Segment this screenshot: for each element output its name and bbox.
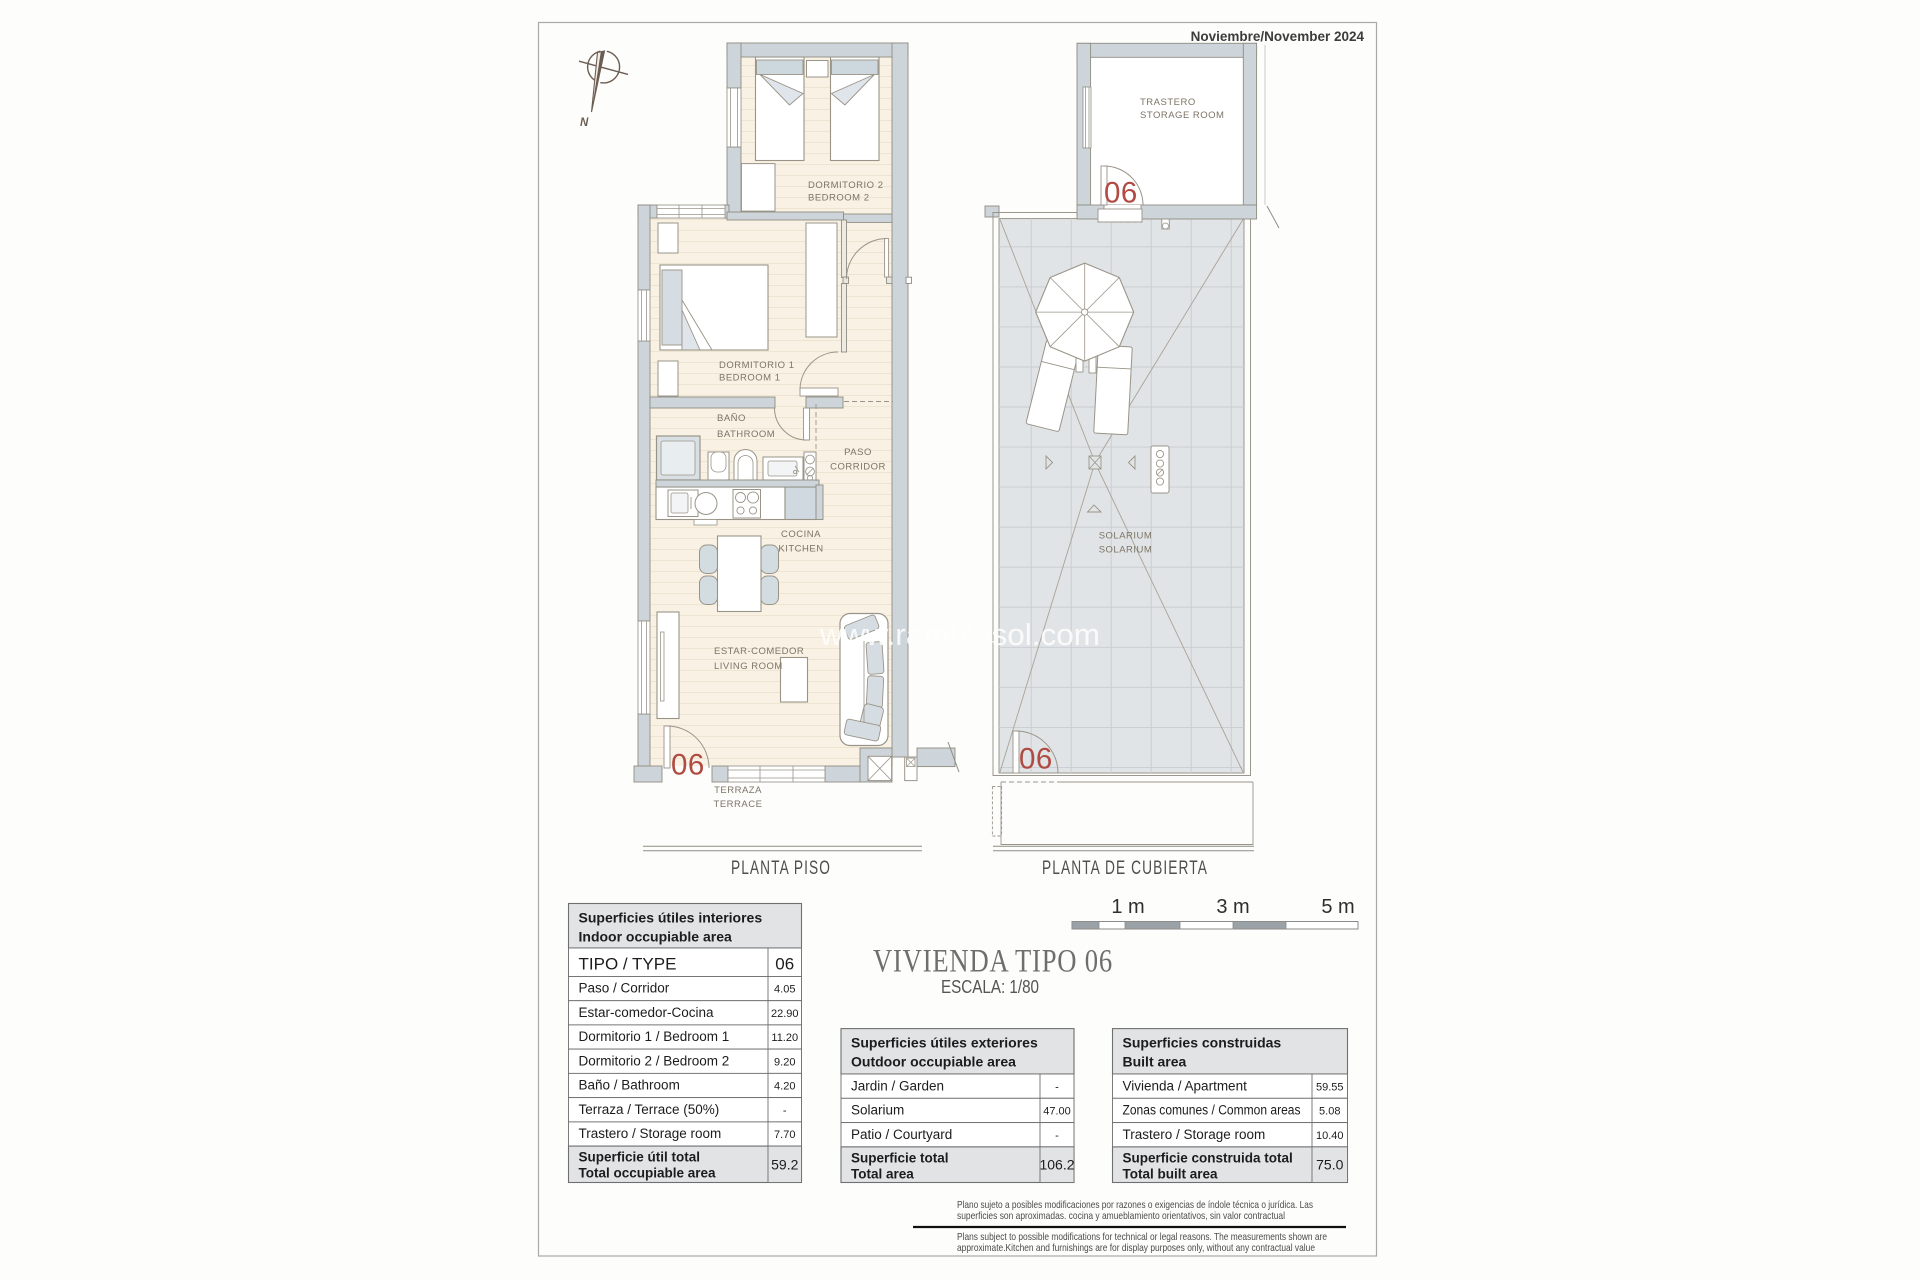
svg-text:Terraza / Terrace (50%): Terraza / Terrace (50%) (579, 1102, 720, 1117)
svg-text:Built area: Built area (1123, 1054, 1187, 1070)
svg-text:59.2: 59.2 (771, 1156, 798, 1172)
svg-text:N: N (580, 117, 589, 129)
svg-text:LIVING ROOM: LIVING ROOM (714, 661, 783, 672)
svg-text:superficies son aproximadas. c: superficies son aproximadas. cocina y am… (957, 1210, 1285, 1222)
svg-text:CORRIDOR: CORRIDOR (830, 462, 886, 473)
svg-text:10.40: 10.40 (1316, 1130, 1344, 1142)
svg-text:Paso / Corridor: Paso / Corridor (579, 981, 670, 996)
svg-text:ESTAR-COMEDOR: ESTAR-COMEDOR (714, 646, 804, 657)
svg-text:75.0: 75.0 (1316, 1157, 1343, 1173)
svg-text:Estar-comedor-Cocina: Estar-comedor-Cocina (579, 1005, 715, 1020)
svg-text:Dormitorio 1 / Bedroom 1: Dormitorio 1 / Bedroom 1 (579, 1029, 730, 1044)
svg-text:1 m: 1 m (1111, 896, 1144, 918)
svg-text:www.ramblasol.com: www.ramblasol.com (819, 617, 1100, 652)
svg-text:PASO: PASO (844, 447, 872, 458)
svg-text:06: 06 (775, 955, 794, 974)
svg-text:STORAGE ROOM: STORAGE ROOM (1140, 110, 1224, 121)
svg-text:approximate.Kitchen and furnis: approximate.Kitchen and furnishings are … (957, 1242, 1315, 1254)
svg-text:BAÑO: BAÑO (717, 413, 746, 424)
svg-text:06: 06 (1019, 743, 1053, 776)
svg-text:TRASTERO: TRASTERO (1140, 97, 1196, 108)
svg-text:106.2: 106.2 (1039, 1157, 1074, 1173)
svg-text:06: 06 (671, 749, 705, 782)
svg-text:TIPO / TYPE: TIPO / TYPE (579, 955, 677, 974)
svg-text:VIVIENDA TIPO 06: VIVIENDA TIPO 06 (873, 944, 1113, 980)
svg-text:Indoor occupiable area: Indoor occupiable area (579, 929, 732, 945)
svg-text:Zonas comunes / Common areas: Zonas comunes / Common areas (1123, 1103, 1301, 1118)
svg-text:TERRACE: TERRACE (714, 799, 763, 810)
svg-text:Trastero / Storage room: Trastero / Storage room (579, 1126, 722, 1141)
svg-text:06: 06 (1104, 177, 1138, 210)
svg-text:TERRAZA: TERRAZA (714, 785, 762, 796)
svg-text:SOLARIUM: SOLARIUM (1099, 531, 1153, 542)
svg-text:4.20: 4.20 (774, 1081, 795, 1093)
svg-text:DORMITORIO 2: DORMITORIO 2 (808, 180, 884, 191)
svg-text:Trastero / Storage room: Trastero / Storage room (1123, 1127, 1266, 1142)
svg-text:Superficies construidas: Superficies construidas (1123, 1035, 1282, 1051)
svg-text:47.00: 47.00 (1043, 1106, 1071, 1118)
svg-text:Outdoor occupiable area: Outdoor occupiable area (851, 1054, 1016, 1070)
svg-text:BEDROOM 2: BEDROOM 2 (808, 193, 870, 204)
svg-text:DORMITORIO 1: DORMITORIO 1 (719, 360, 795, 371)
svg-text:Superficies útiles exteriores: Superficies útiles exteriores (851, 1035, 1038, 1051)
svg-text:Superficie construida total: Superficie construida total (1123, 1150, 1293, 1165)
svg-text:Superficie total: Superficie total (851, 1150, 949, 1165)
svg-text:-: - (1055, 1130, 1059, 1142)
svg-text:COCINA: COCINA (781, 529, 821, 540)
svg-text:Dormitorio 2 / Bedroom 2: Dormitorio 2 / Bedroom 2 (579, 1053, 730, 1068)
svg-text:4.05: 4.05 (774, 984, 795, 996)
svg-text:11.20: 11.20 (771, 1032, 798, 1044)
svg-text:BATHROOM: BATHROOM (717, 429, 775, 440)
svg-text:Superficies útiles interiores: Superficies útiles interiores (579, 910, 763, 926)
svg-text:5.08: 5.08 (1319, 1106, 1340, 1118)
svg-text:5 m: 5 m (1321, 896, 1354, 918)
svg-text:-: - (1055, 1081, 1059, 1093)
svg-text:-: - (783, 1105, 787, 1117)
svg-text:Total occupiable area: Total occupiable area (579, 1166, 717, 1181)
svg-text:Total area: Total area (851, 1166, 914, 1181)
svg-text:7.70: 7.70 (774, 1129, 795, 1141)
svg-text:Total built area: Total built area (1123, 1166, 1219, 1181)
svg-text:ESCALA: 1/80: ESCALA: 1/80 (941, 977, 1039, 997)
svg-text:9.20: 9.20 (774, 1056, 795, 1068)
svg-text:22.90: 22.90 (771, 1008, 799, 1020)
svg-text:KITCHEN: KITCHEN (778, 544, 823, 555)
svg-text:Solarium: Solarium (851, 1103, 904, 1118)
svg-text:Noviembre/November 2024: Noviembre/November 2024 (1191, 29, 1365, 44)
svg-text:Superficie útil total: Superficie útil total (579, 1150, 701, 1165)
svg-text:Baño / Bathroom: Baño / Bathroom (579, 1078, 680, 1093)
svg-text:PLANTA PISO: PLANTA PISO (731, 858, 831, 879)
svg-text:Patio / Courtyard: Patio / Courtyard (851, 1127, 952, 1142)
svg-text:BEDROOM 1: BEDROOM 1 (719, 373, 781, 384)
svg-text:3 m: 3 m (1216, 896, 1249, 918)
svg-text:Vivienda / Apartment: Vivienda / Apartment (1123, 1078, 1248, 1093)
svg-text:SOLARIUM: SOLARIUM (1099, 545, 1153, 556)
svg-text:PLANTA DE CUBIERTA: PLANTA DE CUBIERTA (1042, 858, 1208, 879)
svg-text:Jardin / Garden: Jardin / Garden (851, 1078, 944, 1093)
svg-text:59.55: 59.55 (1316, 1081, 1344, 1093)
